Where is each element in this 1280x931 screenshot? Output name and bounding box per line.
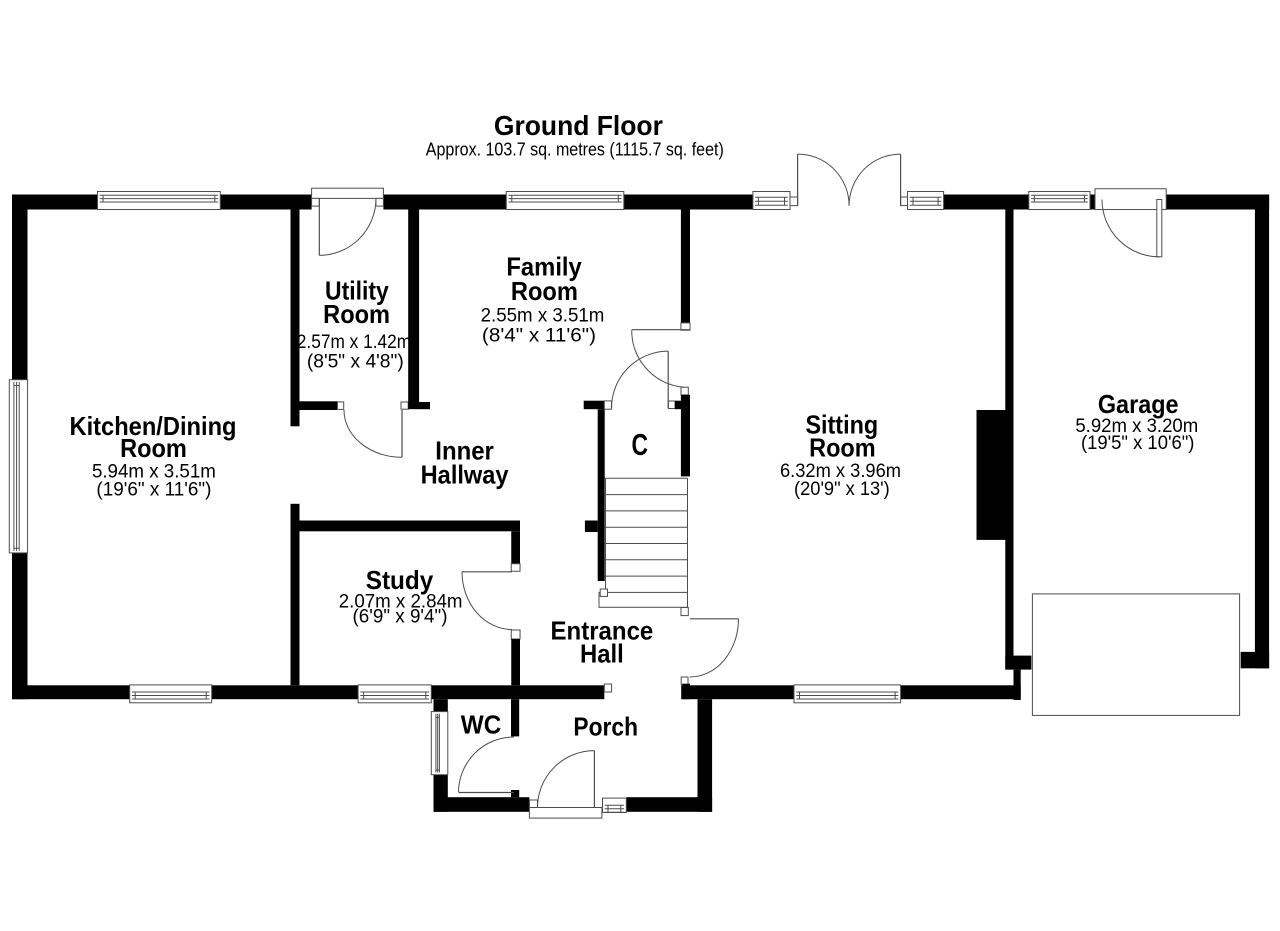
svg-text:(19'6" x 11'6"): (19'6" x 11'6") <box>96 479 211 500</box>
svg-text:2.55m x 3.51m: 2.55m x 3.51m <box>481 306 605 327</box>
svg-text:Room: Room <box>511 276 578 306</box>
svg-text:Study: Study <box>366 565 434 595</box>
svg-text:(6'9" x 9'4"): (6'9" x 9'4") <box>353 607 448 628</box>
svg-text:Ground Floor: Ground Floor <box>494 110 663 141</box>
svg-text:Room: Room <box>323 299 390 329</box>
svg-text:2.57m x 1.42m: 2.57m x 1.42m <box>297 332 411 353</box>
svg-text:(8'4" x 11'6"): (8'4" x 11'6") <box>482 326 596 347</box>
svg-text:Room: Room <box>809 433 876 463</box>
svg-text:Porch: Porch <box>573 712 638 742</box>
svg-text:Hall: Hall <box>580 638 624 668</box>
svg-text:(19'5" x 10'6"): (19'5" x 10'6") <box>1081 433 1195 454</box>
svg-text:Approx. 103.7 sq. metres (1115: Approx. 103.7 sq. metres (1115.7 sq. fee… <box>426 139 724 160</box>
svg-text:WC: WC <box>461 709 502 739</box>
svg-text:Room: Room <box>120 433 187 463</box>
svg-text:Hallway: Hallway <box>421 460 509 490</box>
svg-text:(20'9" x 13'): (20'9" x 13') <box>794 479 890 500</box>
svg-text:(8'5" x 4'8"): (8'5" x 4'8") <box>307 351 404 372</box>
svg-text:C: C <box>631 427 648 462</box>
svg-text:Garage: Garage <box>1098 389 1179 419</box>
